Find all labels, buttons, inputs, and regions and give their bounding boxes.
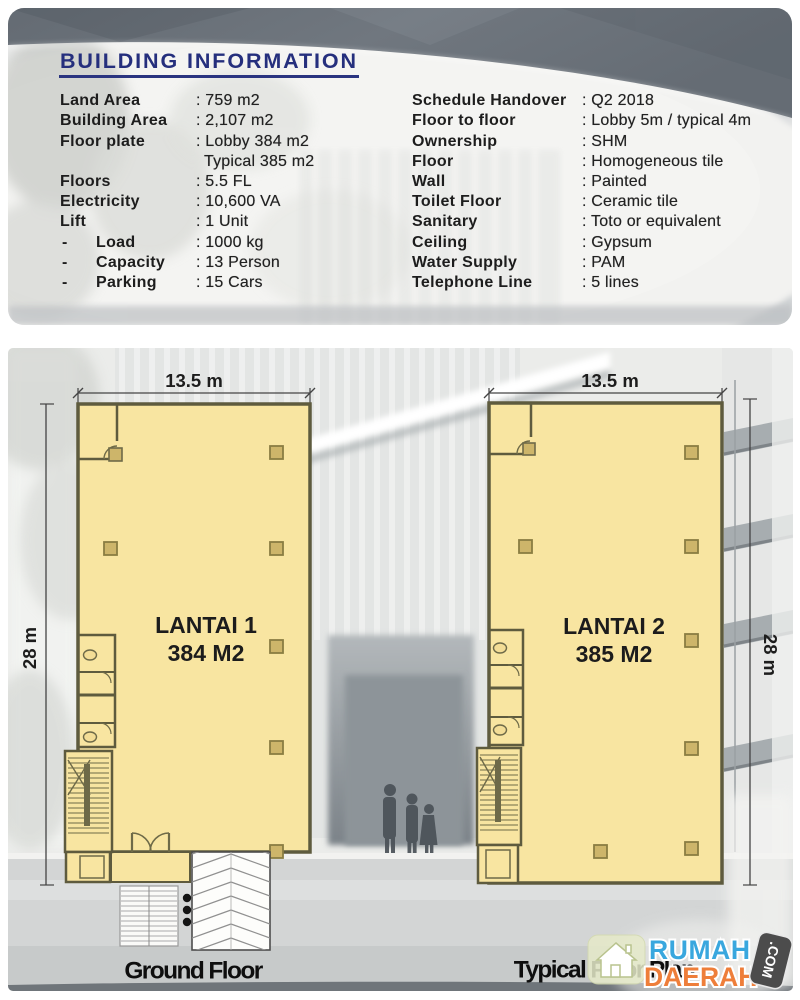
svg-text:28 m: 28 m [19, 627, 40, 669]
svg-text:LANTAI 2: LANTAI 2 [563, 613, 665, 639]
svg-text:13.5 m: 13.5 m [165, 370, 223, 391]
svg-text:LANTAI 1: LANTAI 1 [155, 612, 257, 638]
svg-text:385 M2: 385 M2 [576, 641, 653, 667]
svg-text:RUMAH: RUMAH [649, 935, 751, 965]
svg-text:Ground Floor: Ground Floor [124, 958, 263, 985]
svg-text:DAERAH: DAERAH [644, 962, 757, 992]
svg-text:13.5 m: 13.5 m [581, 370, 639, 391]
svg-text:28 m: 28 m [760, 634, 781, 676]
svg-text:384 M2: 384 M2 [168, 640, 245, 666]
